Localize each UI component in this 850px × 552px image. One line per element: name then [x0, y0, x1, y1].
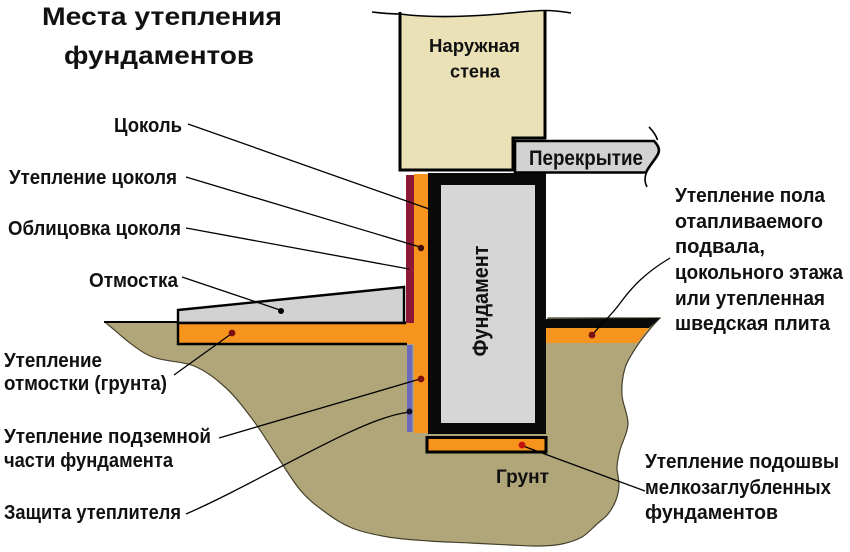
- svg-text:шведская плита: шведская плита: [675, 313, 831, 335]
- svg-text:стена: стена: [450, 61, 501, 82]
- svg-text:Места утепления: Места утепления: [42, 3, 282, 31]
- svg-text:Утепление пола: Утепление пола: [675, 185, 826, 207]
- svg-text:цокольного этажа: цокольного этажа: [675, 262, 844, 284]
- svg-text:или утепленная: или утепленная: [675, 288, 825, 310]
- svg-text:Утепление подземной: Утепление подземной: [4, 426, 211, 448]
- svg-text:подвала,: подвала,: [675, 236, 765, 258]
- svg-text:мелкозаглубленных: мелкозаглубленных: [645, 477, 831, 499]
- svg-text:отапливаемого: отапливаемого: [675, 211, 823, 233]
- svg-text:Фундамент: Фундамент: [468, 245, 493, 356]
- svg-text:Защита утеплителя: Защита утеплителя: [4, 502, 181, 524]
- svg-text:Отмостка: Отмостка: [89, 270, 179, 292]
- svg-text:Наружная: Наружная: [429, 35, 520, 56]
- svg-text:Утепление цоколя: Утепление цоколя: [9, 167, 177, 189]
- svg-text:фундаментов: фундаментов: [645, 502, 778, 524]
- svg-text:фундаментов: фундаментов: [64, 42, 254, 70]
- svg-text:Утепление: Утепление: [4, 350, 102, 372]
- svg-text:Грунт: Грунт: [496, 467, 549, 488]
- svg-text:Перекрытие: Перекрытие: [529, 147, 643, 170]
- svg-text:Облицовка цоколя: Облицовка цоколя: [8, 218, 181, 240]
- svg-text:Цоколь: Цоколь: [114, 115, 182, 137]
- svg-text:части фундамента: части фундамента: [4, 450, 174, 472]
- svg-text:отмостки (грунта): отмостки (грунта): [4, 373, 167, 395]
- svg-text:Утепление подошвы: Утепление подошвы: [645, 451, 839, 473]
